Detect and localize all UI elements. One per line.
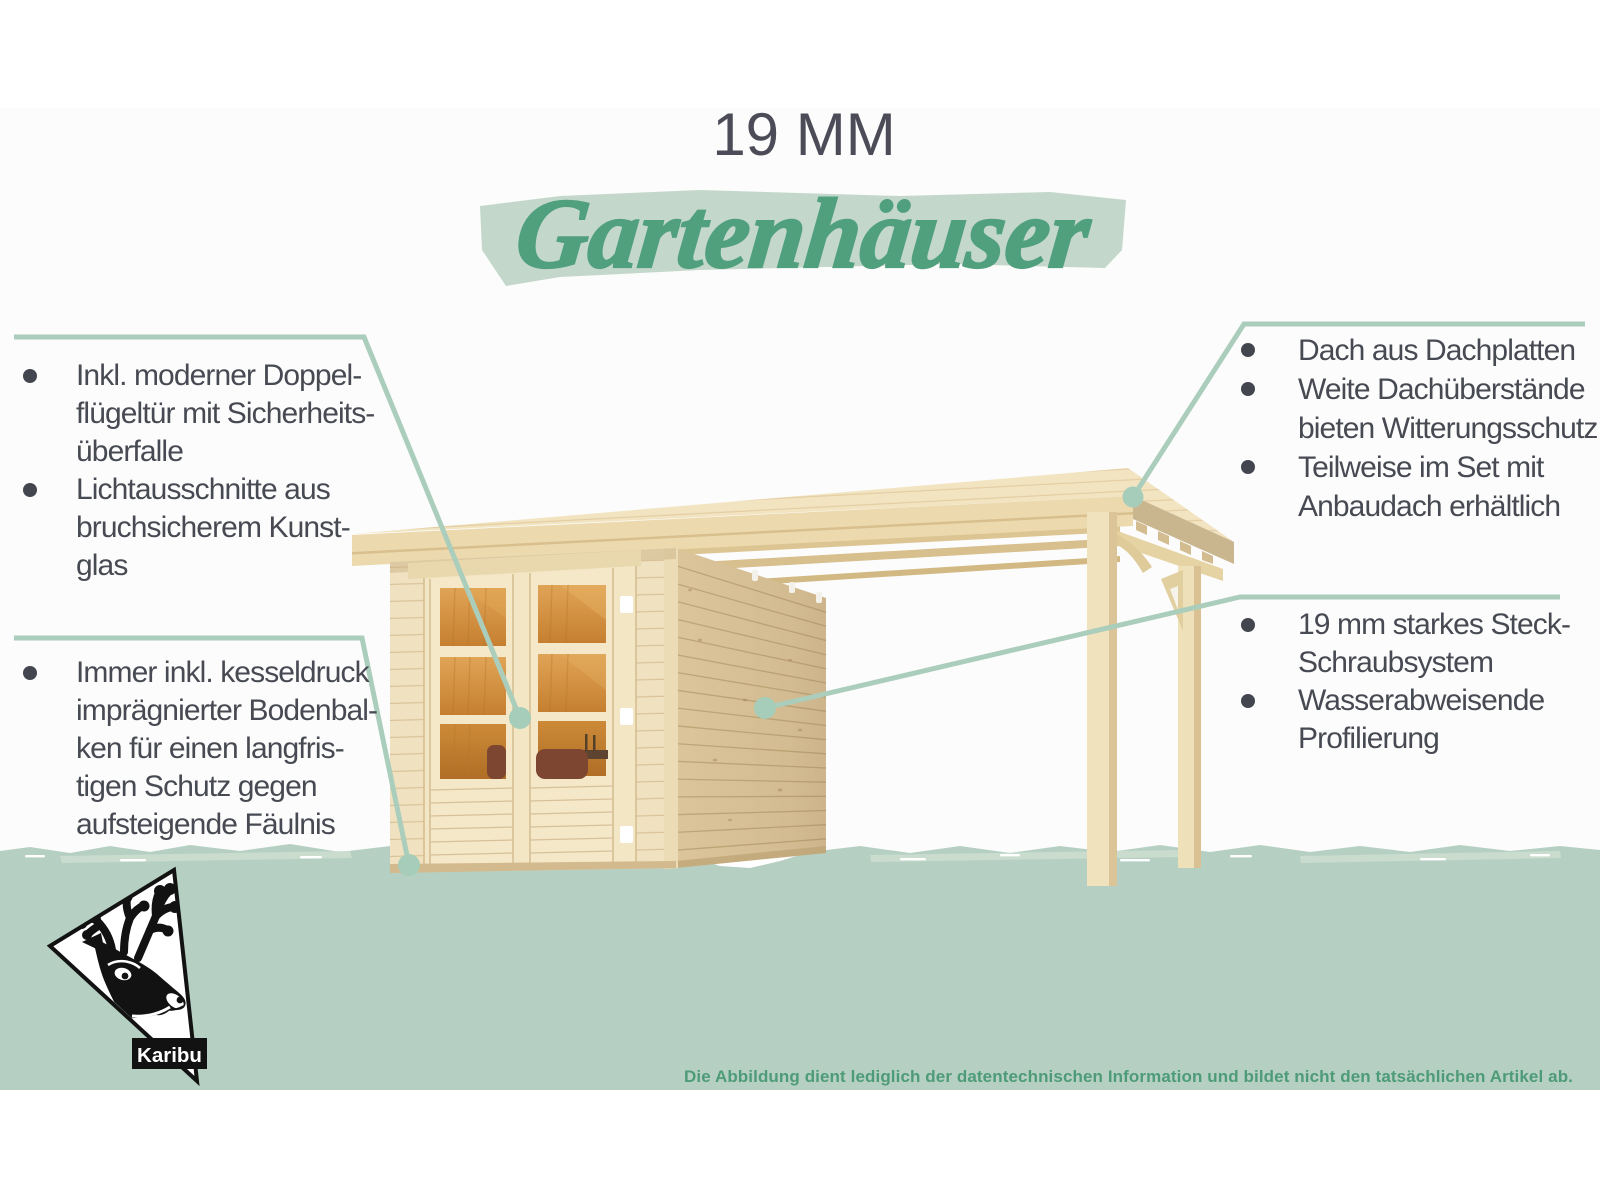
- svg-text:Karibu: Karibu: [137, 1044, 202, 1067]
